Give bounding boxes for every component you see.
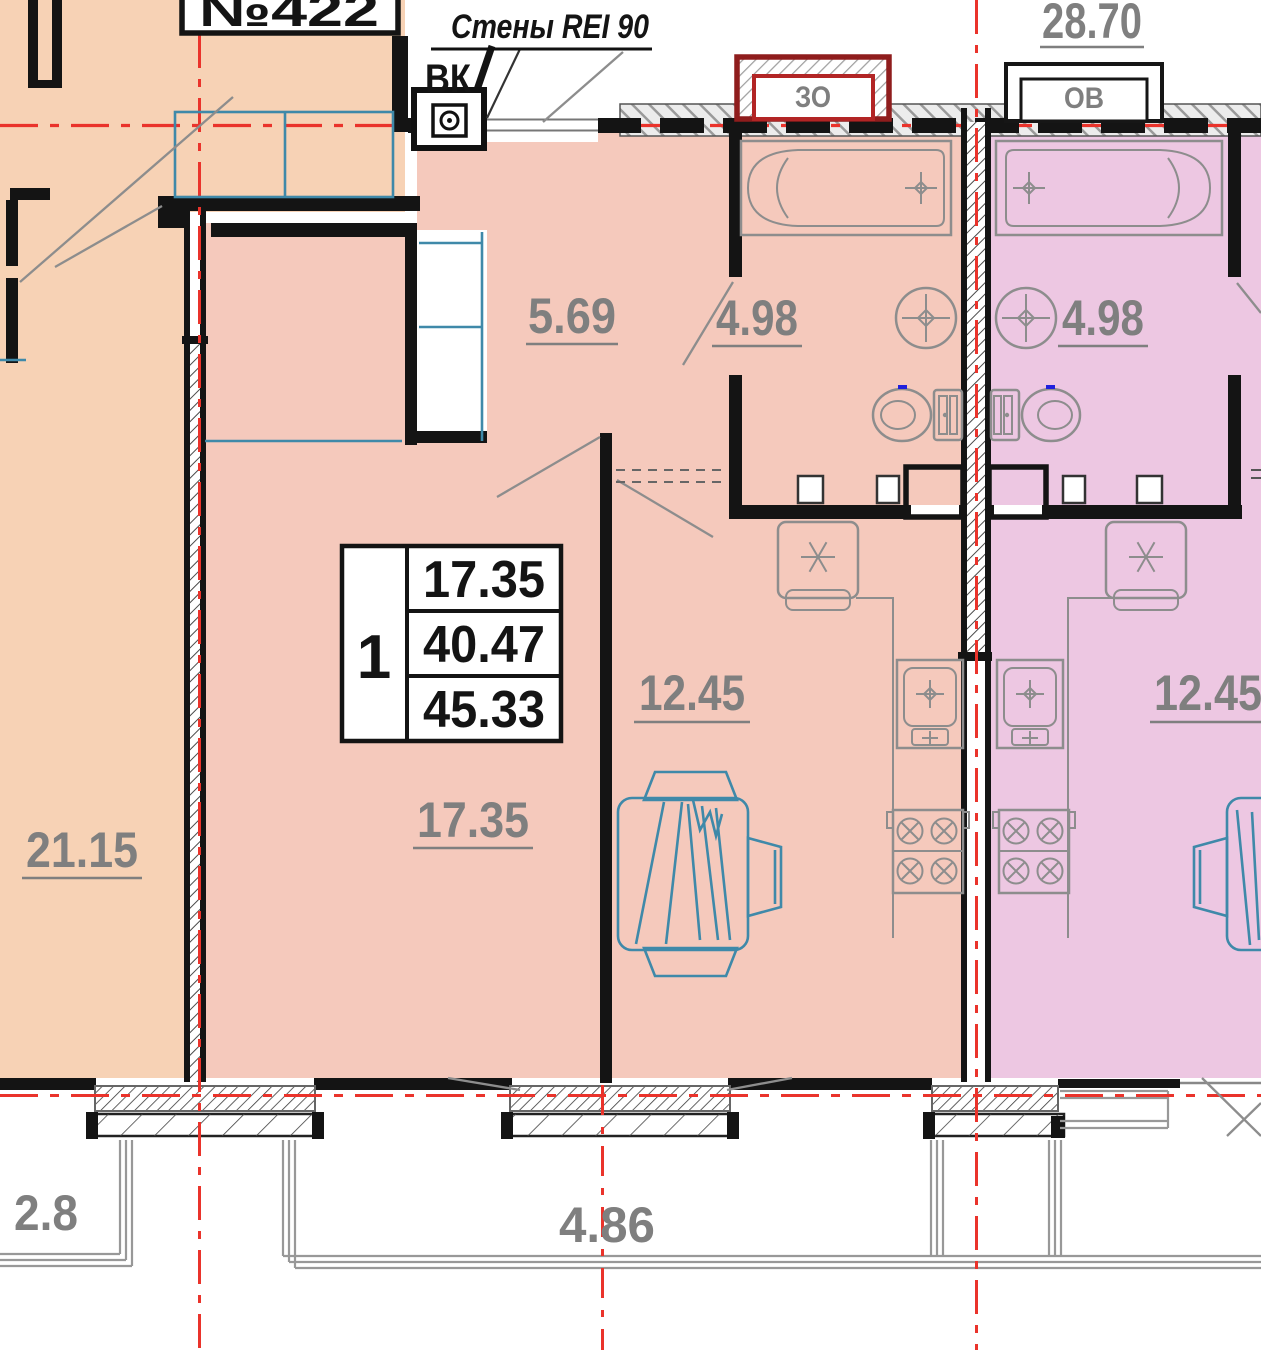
living-area-value: 17.35	[423, 551, 545, 609]
closet-region	[417, 230, 487, 443]
ventilation-shaft-zo: ЗО	[737, 57, 889, 119]
bathroom-right-area-label: 4.98	[1062, 290, 1144, 346]
center-balcony-railing-right	[931, 1140, 943, 1256]
toilet-marker	[898, 385, 907, 389]
sink-icon-bathroom-right	[996, 288, 1056, 348]
left-boundary-wall	[184, 196, 190, 1082]
window-jamb	[501, 1112, 513, 1139]
floor-plan-canvas: ЗО ОВ ВК 28.70 5.69	[0, 0, 1261, 1350]
right-balcony-railing-left	[1049, 1140, 1061, 1256]
duct-stub	[1137, 476, 1162, 503]
entry-vertical-wall	[392, 36, 408, 132]
floor-plan: ЗО ОВ ВК 28.70 5.69	[0, 0, 1261, 1350]
window-hatch	[932, 1086, 1058, 1111]
window-sill-marks	[504, 1114, 736, 1136]
window-jamb	[86, 1112, 98, 1139]
window-jamb	[312, 1112, 324, 1139]
total-area-value: 45.33	[423, 681, 545, 739]
kitchen-left-area-label: 12.45	[639, 665, 745, 721]
balcony-left-dimension: 2.8	[14, 1185, 78, 1241]
bottom-wall	[1058, 1079, 1180, 1088]
walls-note: Стены REI 90	[431, 8, 652, 49]
living-room-area-label: 17.35	[417, 792, 529, 848]
closet-right-wall	[405, 228, 417, 445]
neighbor-wall	[52, 0, 62, 88]
central-dividing-wall	[961, 108, 967, 1082]
neighbor-wall	[28, 0, 38, 88]
neighbor-wall	[6, 278, 18, 363]
neighbor-wall	[6, 200, 18, 266]
neighbor-wall	[10, 188, 50, 200]
shaft-ov-label: ОВ	[1064, 82, 1104, 115]
apartment-number: №422	[199, 0, 379, 36]
right-balcony-door-swing	[1202, 1078, 1261, 1136]
window-sill-marks	[926, 1114, 1064, 1136]
apartment-area-value: 40.47	[423, 616, 545, 674]
upper-apartment-area-label: 28.70	[1042, 0, 1142, 49]
balcony-window-center	[501, 1086, 739, 1139]
left-apartment-region	[0, 212, 188, 1078]
window-sill-marks	[89, 1114, 321, 1136]
central-dividing-wall	[985, 108, 991, 1082]
neighbor-wall	[28, 80, 62, 88]
bottom-wall	[0, 1078, 96, 1090]
apartment-info-table: 1 17.35 40.47 45.33	[342, 546, 561, 741]
kitchen-right-area-label: 12.45	[1154, 665, 1261, 721]
bathroom-left-wall	[729, 375, 742, 507]
balcony-center-dimension: 4.86	[559, 1197, 655, 1253]
ventilation-shaft-ov: ОВ	[1006, 64, 1162, 121]
bathroom-left-area-label: 4.98	[716, 290, 798, 346]
bathroom-right-wall	[1228, 375, 1241, 512]
duct-stub	[798, 476, 823, 503]
sink-icon-bathroom-left	[896, 288, 956, 348]
balcony-window-left	[86, 1086, 324, 1139]
toilet-marker	[1046, 385, 1055, 389]
duct-stub	[877, 476, 899, 503]
adjacent-room-area-label: 21.15	[26, 822, 138, 878]
windows	[86, 1086, 1065, 1139]
walls-note-text: Стены REI 90	[451, 8, 649, 46]
bathroom-right-wall	[1228, 133, 1241, 277]
living-kitchen-wall	[600, 433, 612, 1083]
shaft-zo-label: ЗО	[795, 81, 831, 114]
plumbing-shaft-vk: ВК	[414, 57, 484, 148]
wall-cap	[182, 336, 208, 344]
balcony-window-right	[923, 1086, 1065, 1139]
entry-wall-stub	[158, 196, 184, 228]
vk-label: ВК	[425, 57, 471, 101]
center-balcony-railing	[283, 1140, 1261, 1268]
walls-note-leader	[487, 49, 520, 118]
apartment-plate: №422	[182, 0, 398, 36]
window-hatch	[95, 1086, 315, 1111]
living-room-top-wall	[211, 223, 417, 237]
right-apartment-region	[991, 130, 1261, 1078]
duct-stub	[1063, 476, 1085, 503]
shaft-dot	[447, 118, 452, 123]
closet-bottom-wall	[405, 431, 487, 443]
hallway-area-label: 5.69	[528, 288, 616, 344]
window-jamb	[923, 1112, 935, 1139]
window-jamb	[727, 1112, 739, 1139]
rooms-count: 1	[357, 623, 391, 692]
window-hatch	[510, 1086, 730, 1111]
